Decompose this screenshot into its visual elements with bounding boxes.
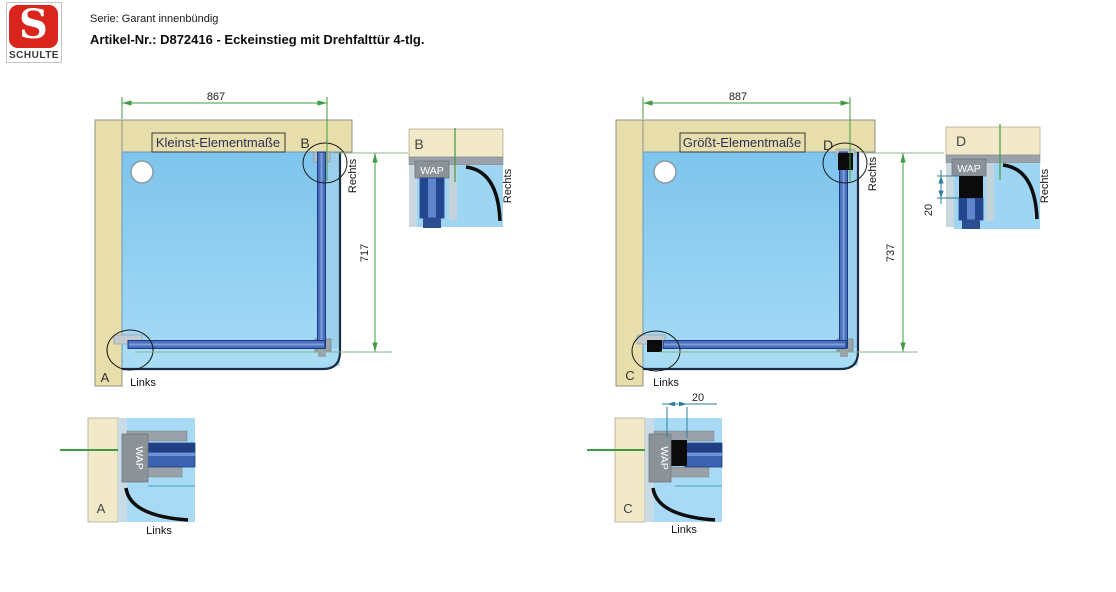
- detail-c-side-label: Links: [671, 524, 697, 536]
- left-glass-strip-right: [326, 153, 340, 366]
- detail-c-wap-label: WAP: [658, 446, 670, 470]
- schulte-logo-mark: S: [9, 5, 58, 48]
- left-corner-label-a: A: [101, 370, 110, 385]
- left-title: Kleinst-Elementmaße: [156, 135, 280, 150]
- right-wall-side: [616, 120, 643, 386]
- right-glass-strip-bottom: [644, 348, 858, 366]
- left-shower-tray: [122, 152, 340, 369]
- schulte-logo-name: SCHULTE: [7, 50, 61, 61]
- detail-d-offset-arrow-bottom: [938, 191, 943, 199]
- left-width-value: 867: [207, 91, 225, 103]
- left-door-profile-horizontal-highlight: [129, 344, 324, 346]
- left-diagram: 867 717 Kleinst-Elementmaße B A Links Re…: [95, 91, 408, 389]
- detail-c-door-profile-top: [685, 443, 722, 452]
- right-width-arrow-left: [643, 100, 653, 105]
- detail-c-offset-value: 20: [692, 392, 704, 404]
- right-height-value: 737: [885, 244, 897, 262]
- right-width-arrow-right: [841, 100, 851, 105]
- left-glass-strip-bottom: [123, 348, 340, 366]
- detail-d-offset-arrow-top: [938, 176, 943, 184]
- left-width-arrow-right: [318, 100, 328, 105]
- left-height-value: 717: [359, 244, 371, 262]
- detail-b-profile-side-strip: [449, 165, 457, 220]
- left-corner-label-b: B: [300, 135, 309, 151]
- series-line: Serie: Garant innenbündig: [90, 13, 218, 25]
- right-drain-circle: [654, 161, 676, 183]
- detail-d-wap-label: WAP: [957, 163, 981, 175]
- detail-a-wap-label: WAP: [133, 446, 145, 470]
- left-width-arrow-left: [122, 100, 132, 105]
- detail-b-label: B: [414, 136, 423, 152]
- left-rechts-label: Rechts: [347, 158, 359, 193]
- left-door-profile-vertical-highlight: [321, 153, 323, 347]
- detail-c: WAP 20 C Links: [587, 392, 722, 536]
- detail-c-offset-arrow-right: [679, 402, 687, 407]
- right-shower-tray: [643, 152, 858, 369]
- detail-d-profile-foot: [962, 220, 980, 229]
- detail-b-side-label: Rechts: [502, 168, 514, 203]
- right-door-profile-vertical-highlight: [843, 153, 845, 347]
- left-wall-side: [95, 120, 122, 386]
- right-corner-label-c: C: [625, 368, 634, 383]
- right-corner-label-d: D: [823, 137, 833, 153]
- detail-d-side-label: Rechts: [1039, 168, 1051, 203]
- detail-b-door-profile-right: [436, 178, 444, 218]
- detail-b-door-profile-left: [420, 178, 428, 218]
- left-height-arrow-top: [372, 153, 377, 163]
- right-height-arrow-bottom: [900, 343, 905, 353]
- right-width-value: 887: [729, 91, 747, 103]
- right-rechts-label: Rechts: [867, 156, 879, 191]
- detail-d-profile-side-strip: [986, 163, 994, 221]
- detail-d-offset-value: 20: [923, 204, 935, 216]
- right-height-arrow-top: [900, 153, 905, 163]
- right-glass-strip-right: [848, 153, 858, 366]
- right-extension-square-bottom: [647, 340, 662, 352]
- left-corner-tab: [318, 350, 326, 357]
- schulte-logo-s: S: [19, 5, 48, 45]
- detail-a-label: A: [97, 501, 106, 516]
- right-corner-tab: [840, 350, 848, 357]
- technical-drawing-canvas: 867 717 Kleinst-Elementmaße B A Links Re…: [0, 0, 1116, 592]
- detail-a: WAP A Links: [60, 418, 195, 537]
- detail-b: WAP B Rechts: [409, 128, 514, 228]
- detail-b-wap-label: WAP: [420, 165, 444, 177]
- left-drain-circle: [131, 161, 153, 183]
- right-extension-square-top: [838, 153, 853, 170]
- detail-d-label: D: [956, 133, 966, 149]
- detail-b-profile-foot: [423, 218, 441, 228]
- right-links-label: Links: [653, 377, 679, 389]
- detail-c-label: C: [623, 501, 632, 516]
- detail-d-extension-square: [959, 176, 983, 198]
- article-line: Artikel-Nr.: D872416 - Eckeinstieg mit D…: [90, 32, 424, 47]
- detail-a-side-label: Links: [146, 525, 172, 537]
- detail-c-door-profile-highlight: [685, 453, 722, 456]
- detail-d: WAP 20 D Rechts: [923, 124, 1051, 229]
- right-door-profile-horizontal-highlight: [664, 344, 845, 346]
- detail-c-offset-arrow-left: [667, 402, 675, 407]
- left-links-label: Links: [130, 377, 156, 389]
- left-height-arrow-bottom: [372, 343, 377, 353]
- detail-d-door-profile-left: [959, 198, 967, 220]
- right-diagram: 887 737 Größt-Elementmaße D C Links Rech…: [616, 91, 944, 389]
- detail-d-door-profile-right: [975, 198, 983, 220]
- right-title: Größt-Elementmaße: [683, 135, 801, 150]
- schulte-logo: S SCHULTE: [6, 2, 62, 63]
